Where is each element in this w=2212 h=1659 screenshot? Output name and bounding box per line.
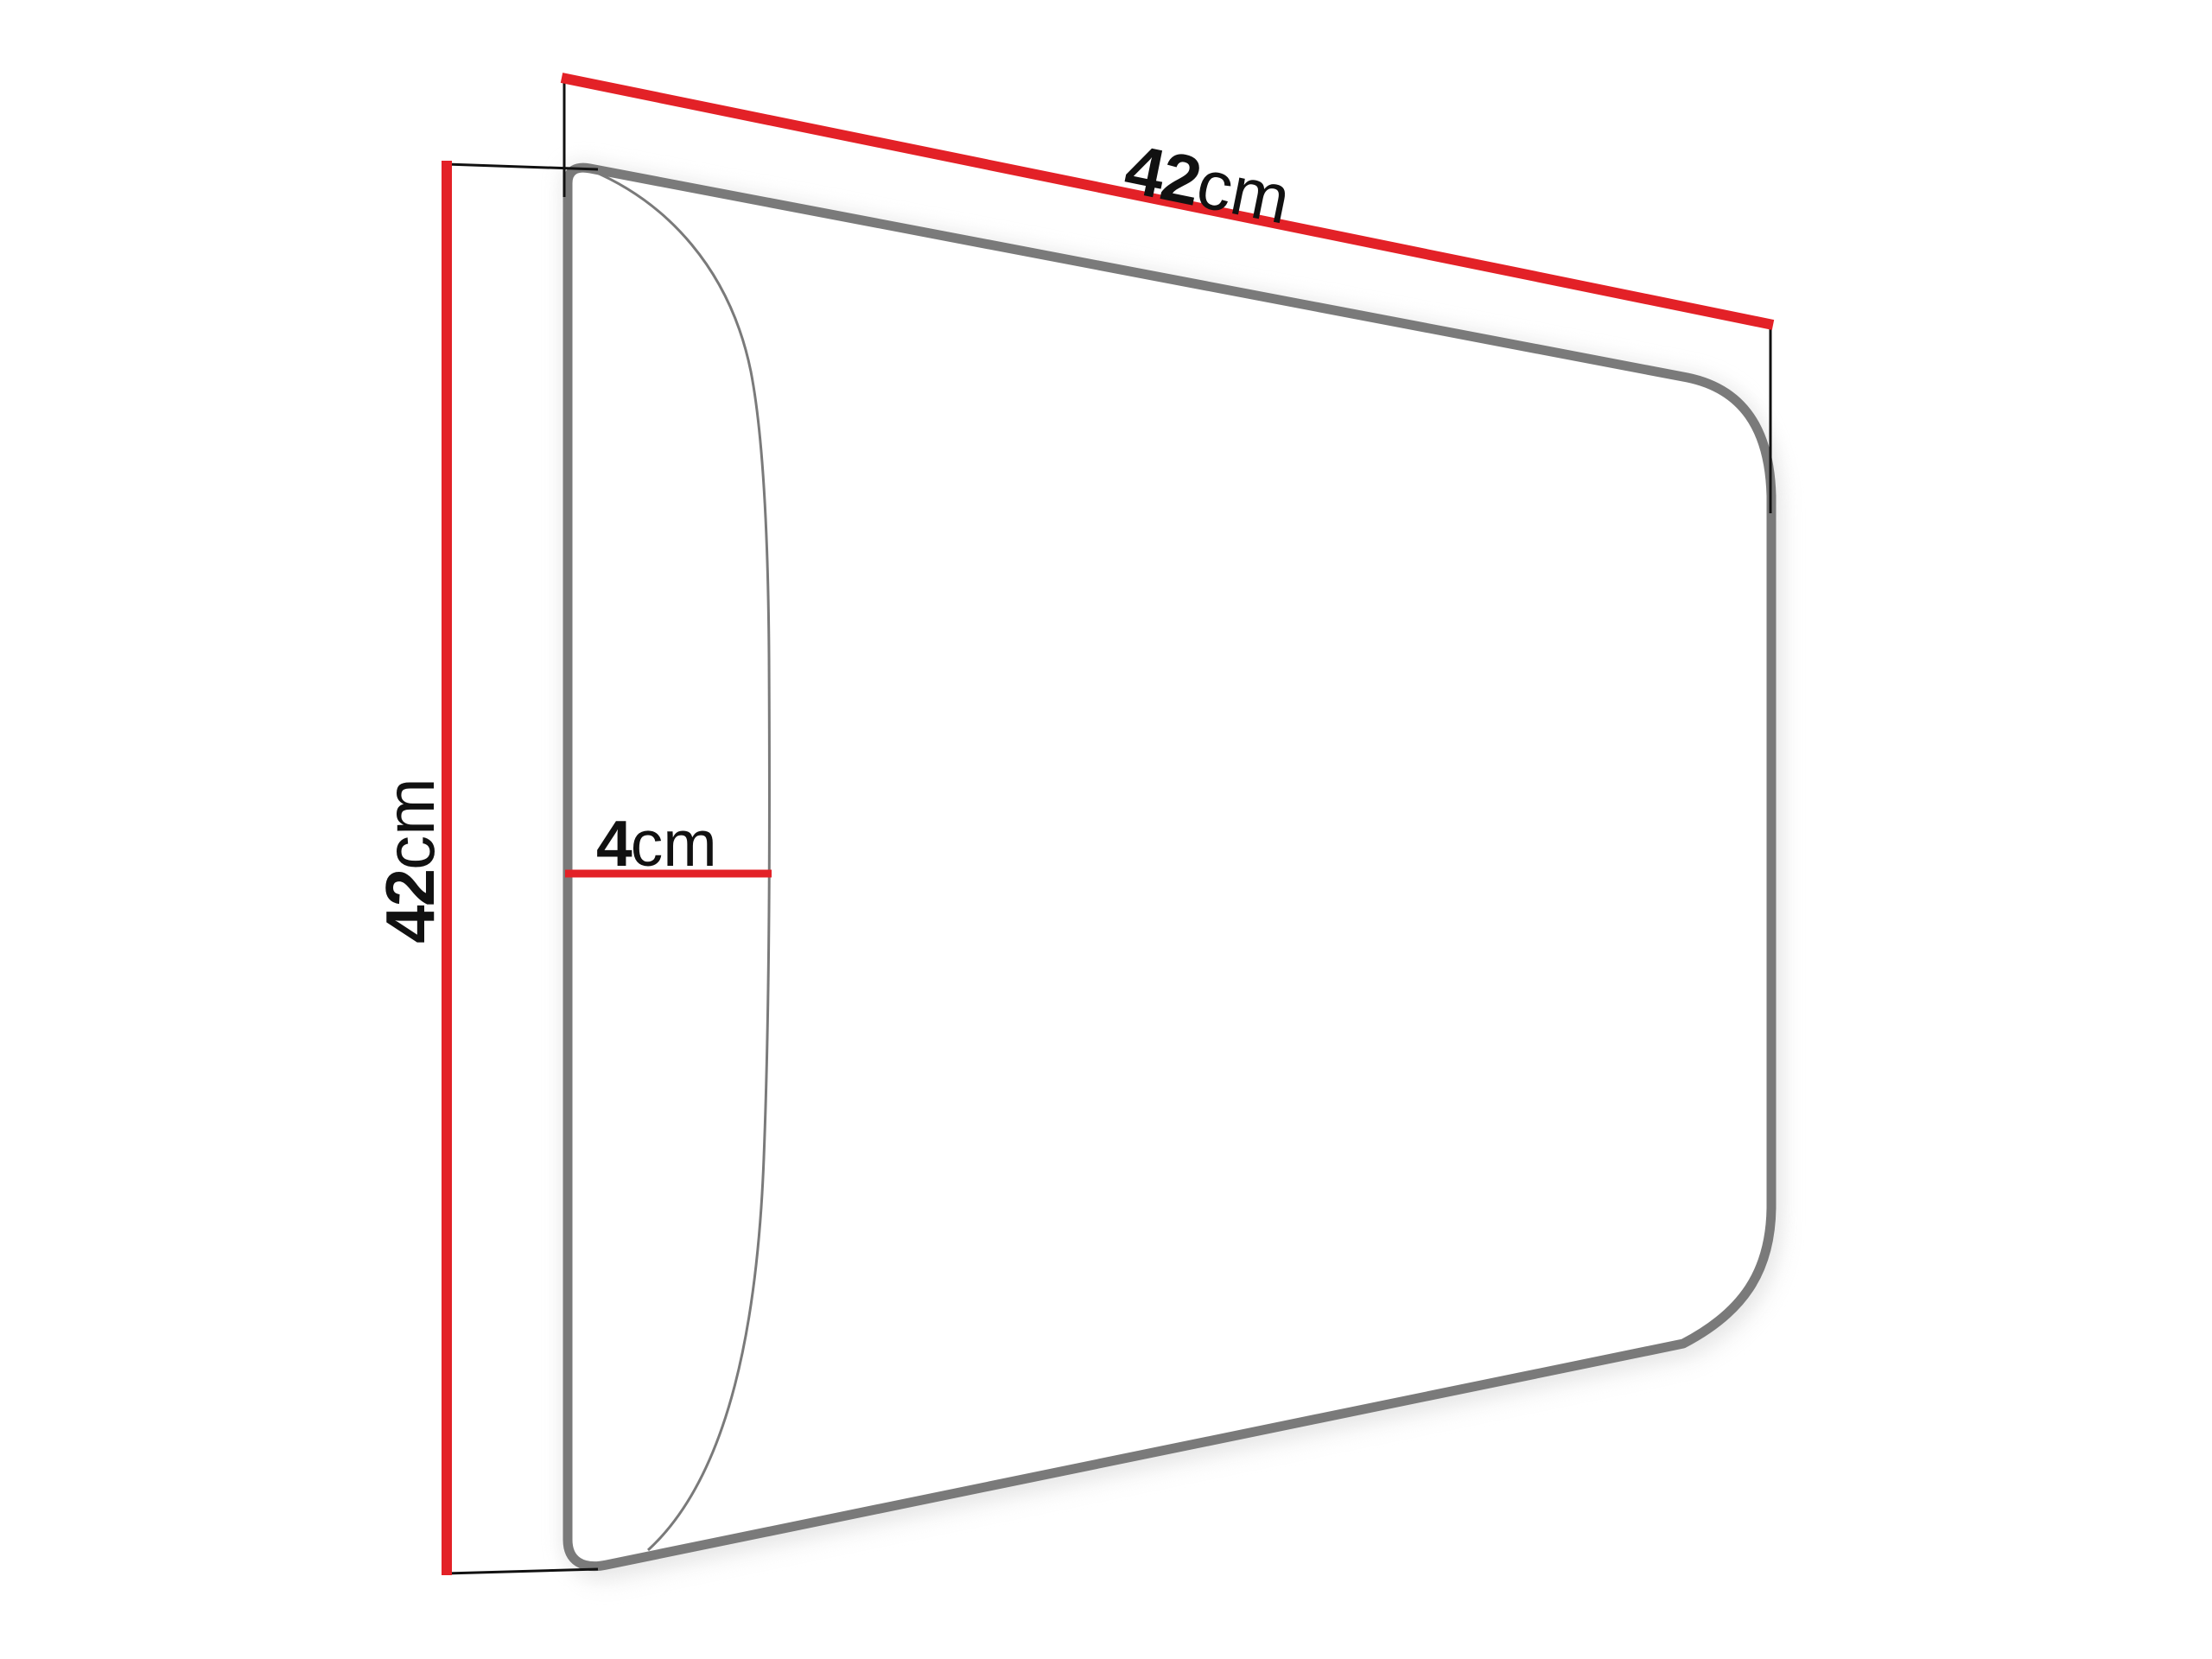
height-unit: cm (372, 778, 448, 870)
depth-value: 4 (596, 807, 632, 880)
panel-outline (568, 168, 1771, 1566)
height-dimension-label: 42cm (372, 778, 448, 944)
width-unit: cm (1191, 144, 1296, 238)
depth-unit: cm (631, 807, 717, 880)
height-value: 42 (372, 870, 448, 944)
dimension-diagram-canvas: 42cm 42cm 4cm (0, 0, 2212, 1659)
width-dimension-label: 42cm (1119, 130, 1297, 238)
panel-dimension-diagram: 42cm 42cm 4cm (0, 0, 2212, 1659)
depth-dimension-label: 4cm (596, 807, 717, 880)
